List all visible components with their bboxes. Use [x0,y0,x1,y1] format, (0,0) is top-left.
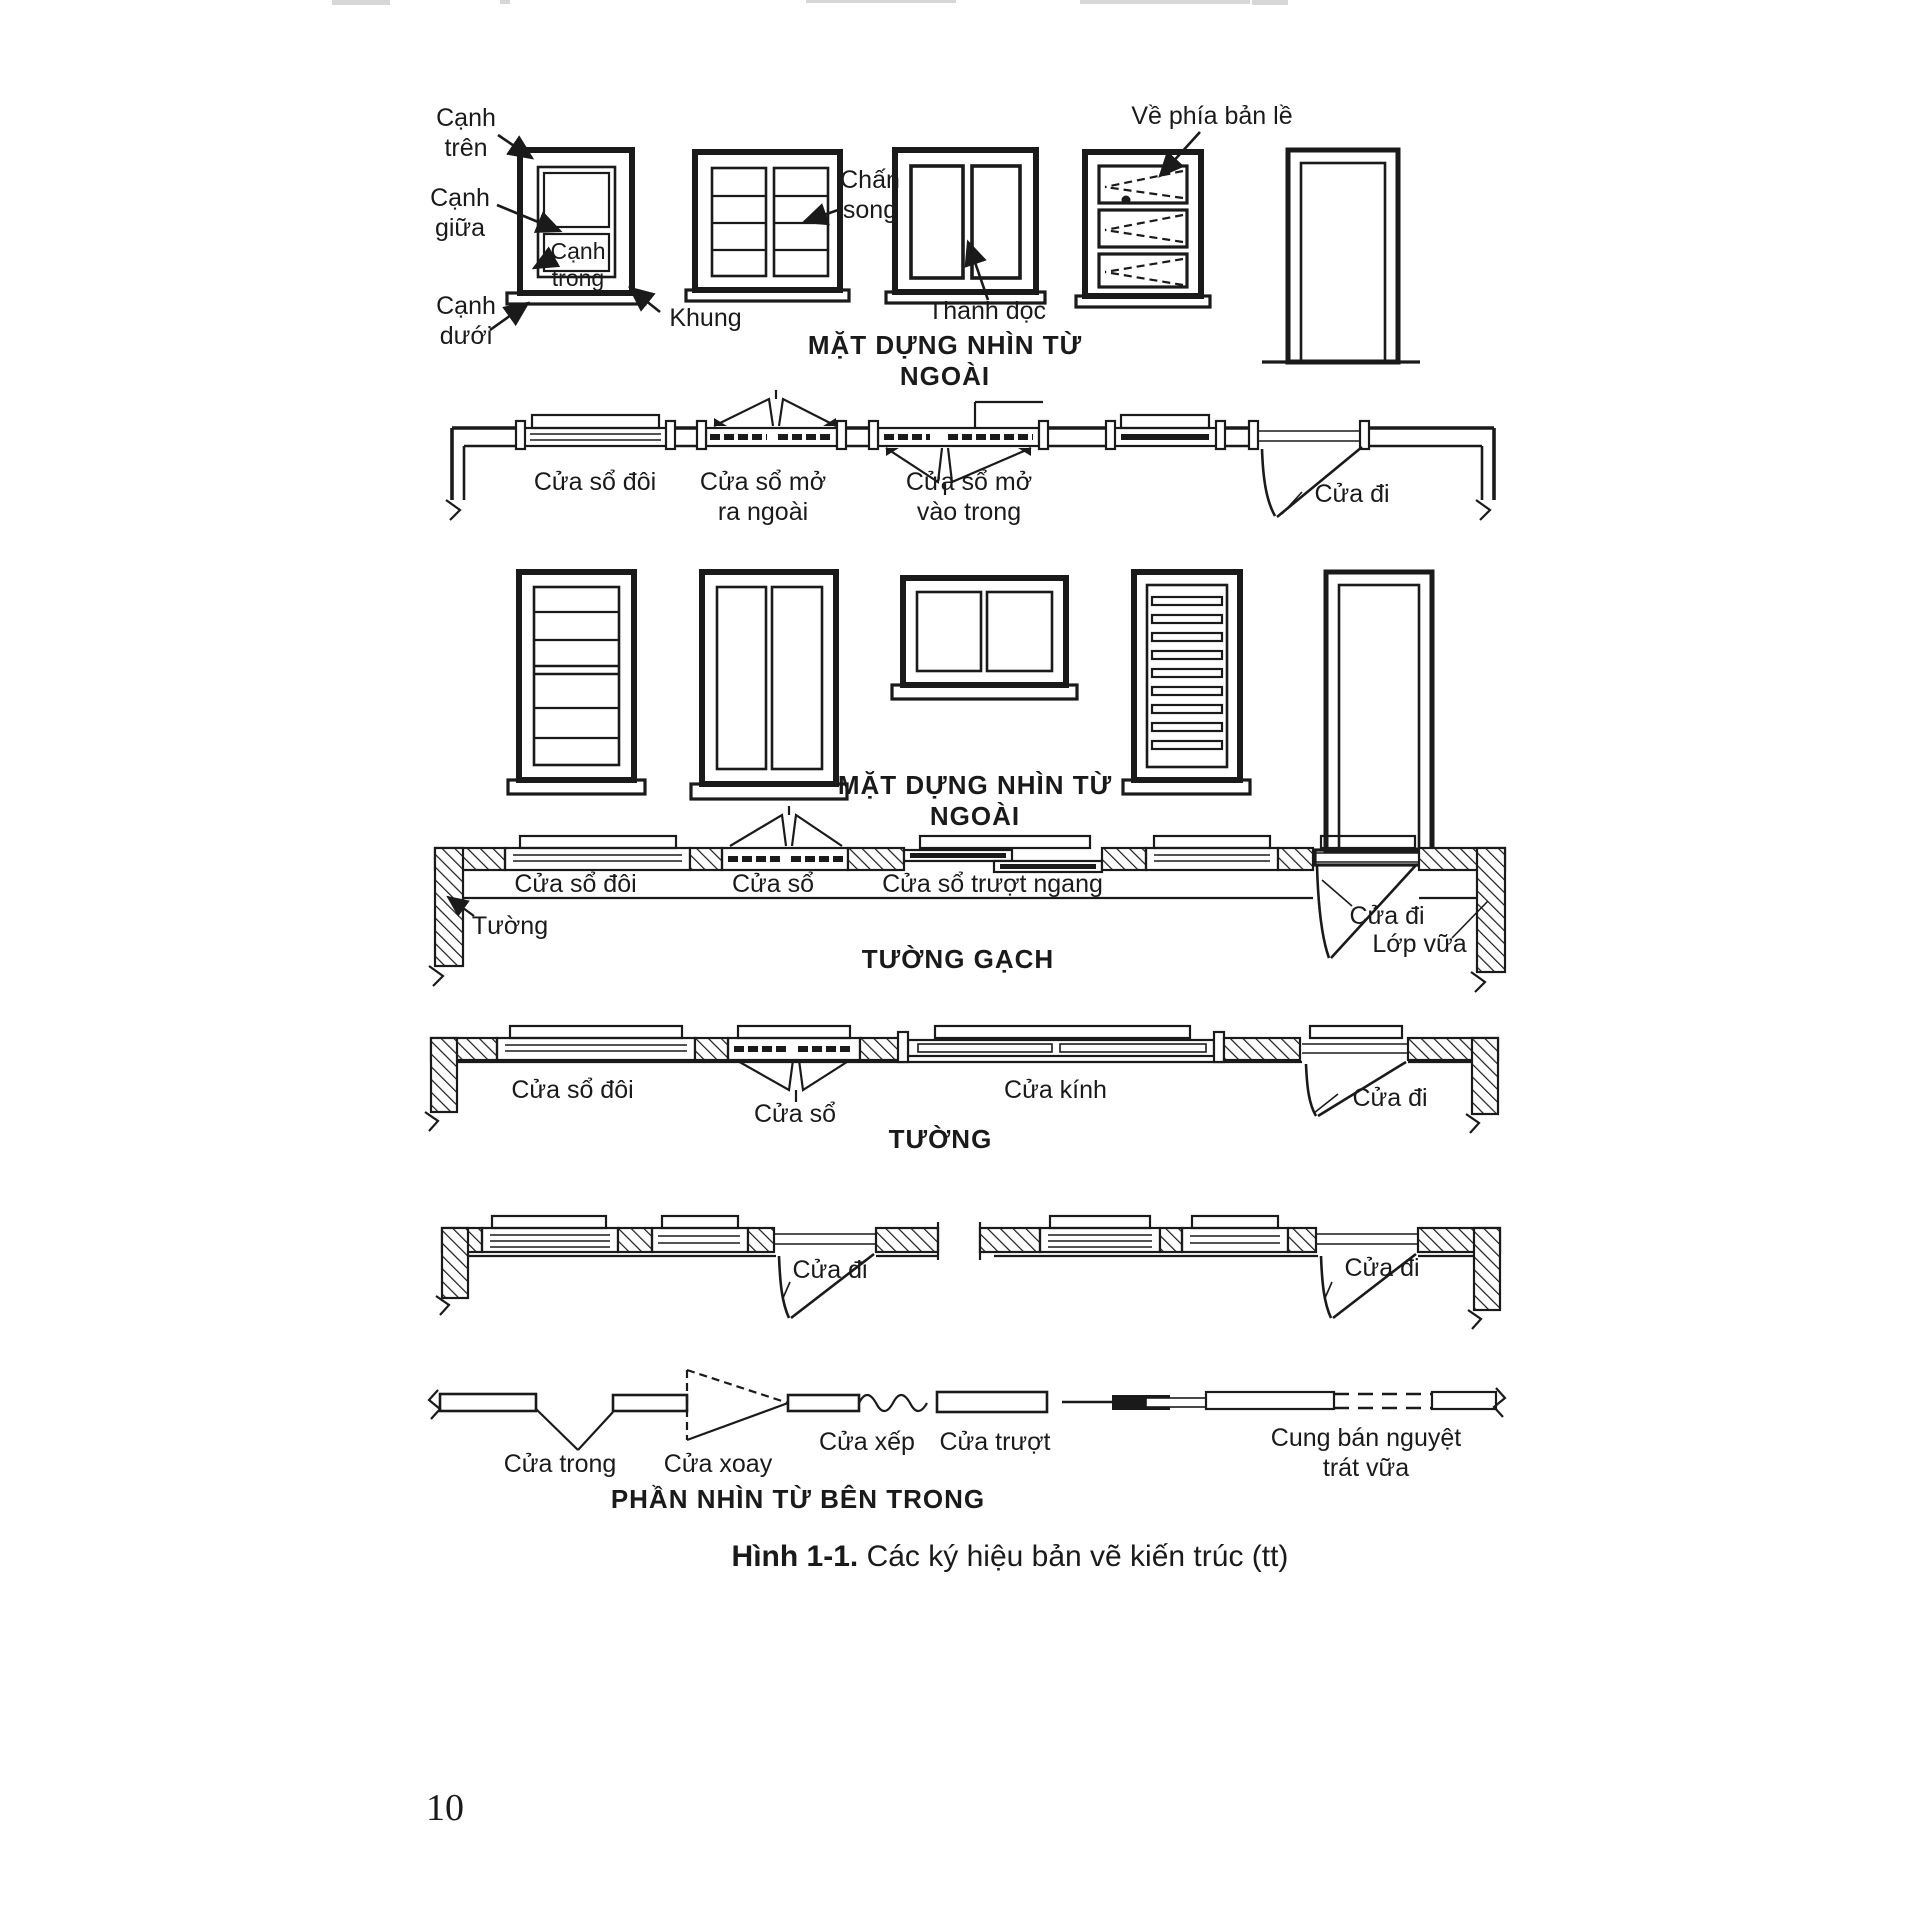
window-elevation-wide [892,578,1077,699]
title-elevation-1: MẶT DỰNG NHÌN TỪ NGOÀI [775,330,1115,391]
label-cua-xep: Cửa xếp [810,1428,924,1458]
label-ve-phia-ban-le: Về phía bản lề [1122,102,1302,132]
scan-artifacts [332,0,1288,5]
label-cua-di-4-left: Cửa đi [778,1256,882,1286]
label-cua-di-1: Cửa đi [1298,480,1406,510]
plan-symbol-glass-door [898,1026,1224,1062]
window-elevation-two-leaf [886,150,1045,303]
figure-caption-text: Các ký hiệu bản vẽ kiến trúc (tt) [867,1540,1289,1573]
window-elevation-barred [686,152,849,301]
plan-symbol-window [1106,415,1225,449]
title-interior: PHẦN NHÌN TỪ BÊN TRONG [608,1484,988,1515]
plan-symbol-window [652,1216,748,1252]
label-cua-di-3: Cửa đi [1334,1084,1446,1114]
plan-symbol-window-out [697,390,846,449]
label-cua-so-mo-vao-trong: Cửa sổ mở vào trong [890,468,1048,527]
label-canh-trong: Cạnh trong [546,238,610,292]
page-number: 10 [426,1786,464,1830]
title-brick-wall: TƯỜNG GẠCH [828,944,1088,975]
label-tuong: Tường [455,912,565,942]
plan-symbol-sliding-window [904,836,1102,872]
door-elevation-tall [1315,572,1443,865]
symbol-plaster-arch [1062,1388,1505,1417]
label-cua-so-3: Cửa sổ [735,1100,855,1130]
label-chan-song: Chấn song [834,166,906,225]
label-cua-di-4-right: Cửa đi [1330,1254,1434,1284]
window-elevation-sash [508,572,645,794]
title-elevation-2: MẶT DỰNG NHÌN TỪ NGOÀI [790,770,1160,831]
symbol-sliding-door [937,1392,1047,1412]
label-canh-giua: Cạnh giữa [422,184,498,243]
label-cua-so-truot-ngang: Cửa sổ trượt ngang [870,870,1115,900]
window-elevation-tall-two-leaf [691,572,847,799]
title-wall: TƯỜNG [858,1124,1023,1155]
label-cung-ban-nguyet: Cung bán nguyệt trát vữa [1246,1424,1486,1483]
book-page: Cạnh trên Cạnh giữa Cạnh trong Cạnh dưới… [0,0,1920,1920]
label-cua-so-mo-ra-ngoai: Cửa sổ mở ra ngoài [688,468,838,527]
label-canh-tren: Cạnh trên [428,104,504,163]
plan-symbol-double-window [505,836,690,870]
plan-symbol-window [1146,836,1278,870]
label-cua-xoay: Cửa xoay [654,1450,782,1480]
door-elevation [1262,150,1420,362]
figure-caption: Hình 1-1. Các ký hiệu bản vẽ kiến trúc (… [640,1540,1380,1574]
plan-symbol-double-window [482,1216,618,1252]
label-khung: Khung [648,304,763,334]
plan-symbol-double-window [497,1026,695,1060]
plan-symbol-window-in [728,1026,860,1102]
label-lop-vua: Lớp vữa [1352,930,1487,960]
label-cua-trong: Cửa trong [494,1450,626,1480]
plan-symbol-window [1182,1216,1288,1252]
label-cua-di-2: Cửa đi [1332,902,1442,932]
window-elevation-louvered [1123,572,1250,794]
label-cua-kinh: Cửa kính [998,1076,1113,1106]
label-cua-so-doi-3: Cửa sổ đôi [500,1076,645,1106]
label-cua-so-doi-2: Cửa sổ đôi [508,870,643,900]
label-canh-duoi: Cạnh dưới [428,292,504,351]
label-cua-so-doi-1: Cửa sổ đôi [505,468,685,498]
label-cua-truot: Cửa trượt [932,1428,1058,1458]
figure-caption-number: Hình 1-1. [732,1540,859,1573]
symbol-folding-door-coil [859,1395,927,1411]
plan-symbol-double-window [1040,1216,1160,1252]
label-cua-so-2: Cửa sổ [718,870,828,900]
label-thanh-doc: Thanh dọc [922,297,1052,327]
symbol-revolving-door [687,1370,788,1440]
plan-symbol-double-window [516,415,675,449]
elevation-row-1 [490,132,1420,362]
window-elevation-hinge-marks [1076,152,1210,307]
